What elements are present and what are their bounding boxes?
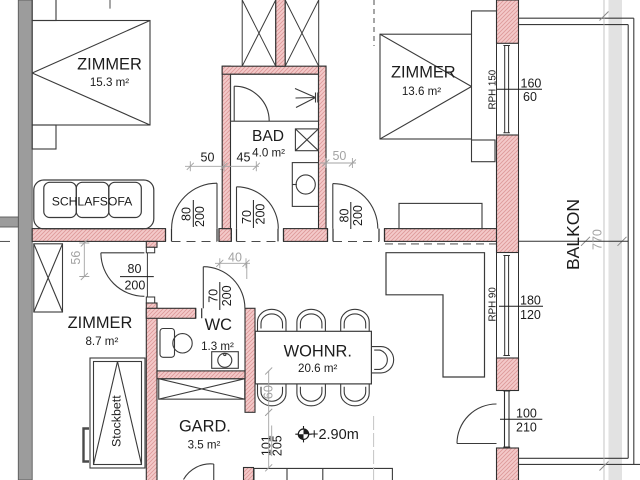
svg-text:8.7 m²: 8.7 m² [85, 335, 118, 348]
svg-text:180: 180 [520, 294, 541, 308]
svg-text:GARD.: GARD. [179, 418, 231, 436]
svg-text:200: 200 [220, 285, 234, 306]
svg-text:3.5 m²: 3.5 m² [188, 439, 221, 452]
svg-text:RPH 90: RPH 90 [488, 287, 499, 322]
svg-text:210: 210 [516, 420, 537, 434]
svg-text:4.0 m²: 4.0 m² [252, 146, 285, 159]
svg-text:+2.90m: +2.90m [310, 427, 359, 443]
svg-text:70: 70 [240, 210, 254, 224]
svg-text:80: 80 [337, 209, 351, 223]
svg-text:70: 70 [206, 289, 220, 303]
svg-text:ZIMMER: ZIMMER [68, 314, 133, 332]
svg-text:50: 50 [201, 151, 215, 165]
svg-text:WC: WC [205, 316, 232, 334]
svg-text:56: 56 [69, 251, 83, 265]
svg-text:13.6 m²: 13.6 m² [402, 85, 441, 98]
svg-text:200: 200 [124, 279, 145, 293]
svg-text:60: 60 [523, 90, 537, 104]
svg-text:ZIMMER: ZIMMER [391, 64, 456, 82]
svg-text:770: 770 [590, 229, 604, 250]
svg-text:15.3 m²: 15.3 m² [90, 76, 129, 89]
svg-text:45: 45 [237, 151, 251, 165]
svg-text:205: 205 [271, 435, 285, 456]
svg-text:BAD: BAD [252, 128, 284, 145]
svg-text:RPH 150: RPH 150 [488, 69, 499, 109]
svg-text:20.6 m²: 20.6 m² [298, 362, 337, 375]
svg-text:ZIMMER: ZIMMER [77, 55, 142, 73]
svg-text:80: 80 [180, 207, 194, 221]
svg-text:120: 120 [520, 308, 541, 322]
svg-text:80: 80 [128, 262, 142, 276]
svg-text:50: 50 [332, 149, 346, 163]
svg-text:200: 200 [254, 204, 268, 225]
svg-text:Stockbett: Stockbett [110, 395, 124, 447]
svg-text:100: 100 [516, 406, 537, 420]
svg-text:WOHNR.: WOHNR. [284, 343, 352, 361]
svg-text:160: 160 [521, 77, 542, 91]
svg-text:SCHLAFSOFA: SCHLAFSOFA [52, 195, 133, 209]
svg-text:BALKON: BALKON [563, 199, 583, 270]
svg-text:200: 200 [351, 205, 365, 226]
svg-text:40: 40 [228, 251, 242, 265]
svg-text:1.3 m²: 1.3 m² [201, 340, 234, 353]
svg-text:200: 200 [193, 206, 207, 227]
